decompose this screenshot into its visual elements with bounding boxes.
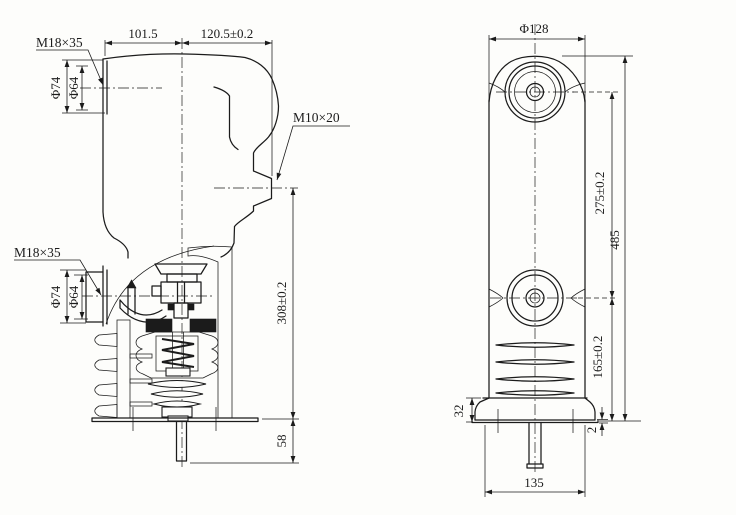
dim-lower-diameters: Φ74 Φ64 [48, 270, 88, 323]
dim-flange-32: 32 [451, 398, 481, 422]
shed-stub [130, 354, 152, 358]
internal-contact-stack [120, 264, 216, 332]
dim-label-120-5: 120.5±0.2 [201, 26, 254, 41]
shed-stub [130, 402, 152, 406]
spring-seat [166, 368, 190, 376]
bellows [148, 381, 206, 422]
dim-label-phi74-upper: Φ74 [48, 76, 63, 99]
insulator-fin [95, 334, 117, 347]
contact-spring [162, 332, 194, 376]
seal-ring [188, 304, 194, 310]
insulator-fin [95, 384, 117, 397]
dim-front-heights: 275±0.2 485 165±0.2 [562, 56, 641, 421]
stem-neck [174, 303, 188, 318]
dim-label-32: 32 [451, 405, 466, 418]
cut-wall-left [117, 320, 130, 418]
contact-plate [155, 264, 207, 274]
drawing-sheet: 101.5 120.5±0.2 Φ74 Φ64 Φ74 Φ64 [0, 0, 736, 515]
dim-label-phi74-lower: Φ74 [48, 285, 63, 308]
dim-label-58: 58 [274, 435, 289, 448]
insulator-fins [95, 334, 152, 418]
interrupter-cap [190, 319, 216, 332]
label-m18x35-lower: M18×35 [14, 245, 61, 260]
section-break-arc [106, 246, 214, 324]
dim-label-165: 165±0.2 [590, 336, 605, 379]
dim-label-phi64-lower: Φ64 [66, 285, 81, 308]
spring-coil [162, 339, 194, 367]
dim-upper-diameters: Φ74 Φ64 [48, 60, 105, 113]
dim-label-485: 485 [607, 230, 622, 250]
dim-top-widths: 101.5 120.5±0.2 [105, 26, 272, 176]
side-view: 101.5 120.5±0.2 Φ74 Φ64 Φ74 Φ64 [14, 26, 350, 470]
interrupter-cap [146, 319, 172, 332]
front-view: Φ128 275±0.2 485 165±0.2 32 2 [451, 21, 641, 497]
guide-pin [127, 280, 136, 288]
hex-nut [161, 282, 201, 303]
dim-step-2: 2 [584, 407, 608, 436]
side-stem-rod [177, 422, 187, 462]
dim-label-308: 308±0.2 [274, 282, 289, 325]
dim-label-phi64-upper: Φ64 [66, 76, 81, 99]
dim-label-2: 2 [584, 427, 599, 434]
dim-label-275: 275±0.2 [592, 172, 607, 215]
label-m18x35-upper: M18×35 [36, 35, 83, 50]
pole-drawing: 101.5 120.5±0.2 Φ74 Φ64 Φ74 Φ64 [0, 0, 736, 515]
label-m10x20: M10×20 [293, 110, 340, 125]
shed-stub [130, 379, 152, 383]
dim-label-135: 135 [524, 475, 544, 490]
dim-label-phi128: Φ128 [519, 21, 548, 36]
insulator-fin [95, 405, 117, 418]
insulator-fin [95, 359, 117, 372]
dim-label-101-5: 101.5 [128, 26, 157, 41]
side-body-outline [103, 54, 279, 258]
seal-ring [168, 304, 174, 310]
